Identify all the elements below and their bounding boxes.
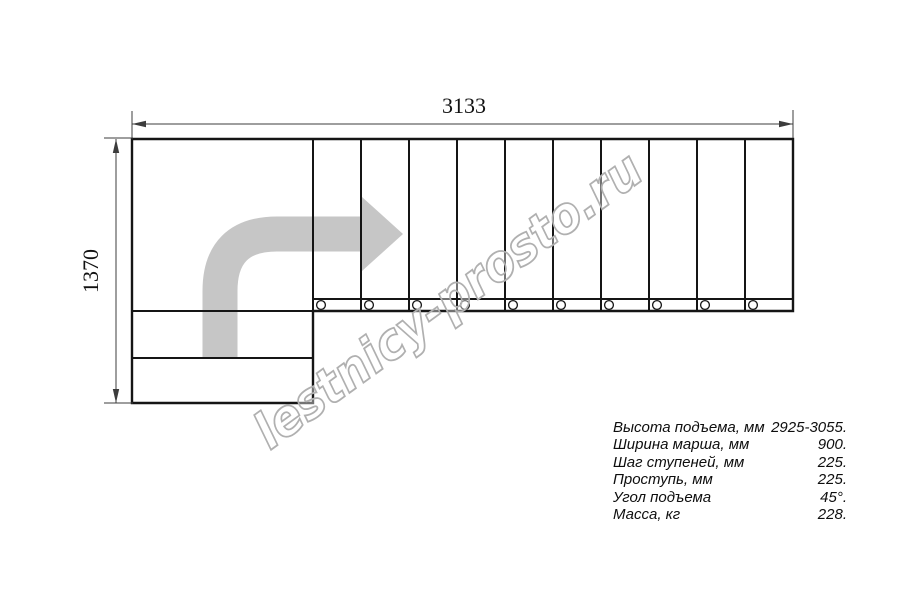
baluster-circle — [365, 301, 374, 310]
spec-label: Шаг ступеней, мм — [613, 454, 744, 471]
baluster-circle — [653, 301, 662, 310]
baluster-circle — [509, 301, 518, 310]
staircase-drawing-page: 3133 1370 lestnicy-prosto.ru Высота подъ… — [0, 0, 900, 600]
dim-arrowhead-right-icon — [779, 121, 793, 127]
spec-row: Высота подъема, мм2925-3055. — [613, 419, 847, 436]
dimension-height: 1370 — [78, 138, 133, 403]
spec-label: Проступь, мм — [613, 471, 713, 488]
spec-label: Ширина марша, мм — [613, 436, 749, 453]
direction-arrow-shaft — [220, 234, 364, 358]
baluster-circle — [317, 301, 326, 310]
dim-arrowhead-top-icon — [113, 139, 119, 153]
direction-arrow-head-icon — [362, 197, 403, 271]
spec-row: Проступь, мм225. — [613, 471, 847, 488]
spec-row: Ширина марша, мм900. — [613, 436, 847, 453]
spec-label: Угол подъема — [613, 489, 711, 506]
spec-value: 900. — [818, 436, 847, 453]
baluster-circle — [701, 301, 710, 310]
spec-value: 45°. — [820, 489, 847, 506]
spec-row: Шаг ступеней, мм225. — [613, 454, 847, 471]
dim-arrowhead-bottom-icon — [113, 389, 119, 403]
spec-table: Высота подъема, мм2925-3055.Ширина марша… — [613, 419, 847, 523]
spec-value: 2925-3055. — [771, 419, 847, 436]
watermark: lestnicy-prosto.ru — [243, 140, 653, 460]
spec-value: 225. — [818, 471, 847, 488]
spec-value: 225. — [818, 454, 847, 471]
baluster-circle — [749, 301, 758, 310]
spec-row: Масса, кг228. — [613, 506, 847, 523]
baluster-circle — [605, 301, 614, 310]
spec-label: Высота подъема, мм — [613, 419, 765, 436]
dim-arrowhead-left-icon — [132, 121, 146, 127]
baluster-circles — [317, 301, 758, 310]
dimension-width: 3133 — [132, 93, 793, 138]
spec-label: Масса, кг — [613, 506, 680, 523]
baluster-circle — [557, 301, 566, 310]
spec-row: Угол подъема45°. — [613, 489, 847, 506]
dimension-height-label: 1370 — [78, 249, 103, 293]
spec-value: 228. — [818, 506, 847, 523]
dimension-width-label: 3133 — [442, 93, 486, 118]
